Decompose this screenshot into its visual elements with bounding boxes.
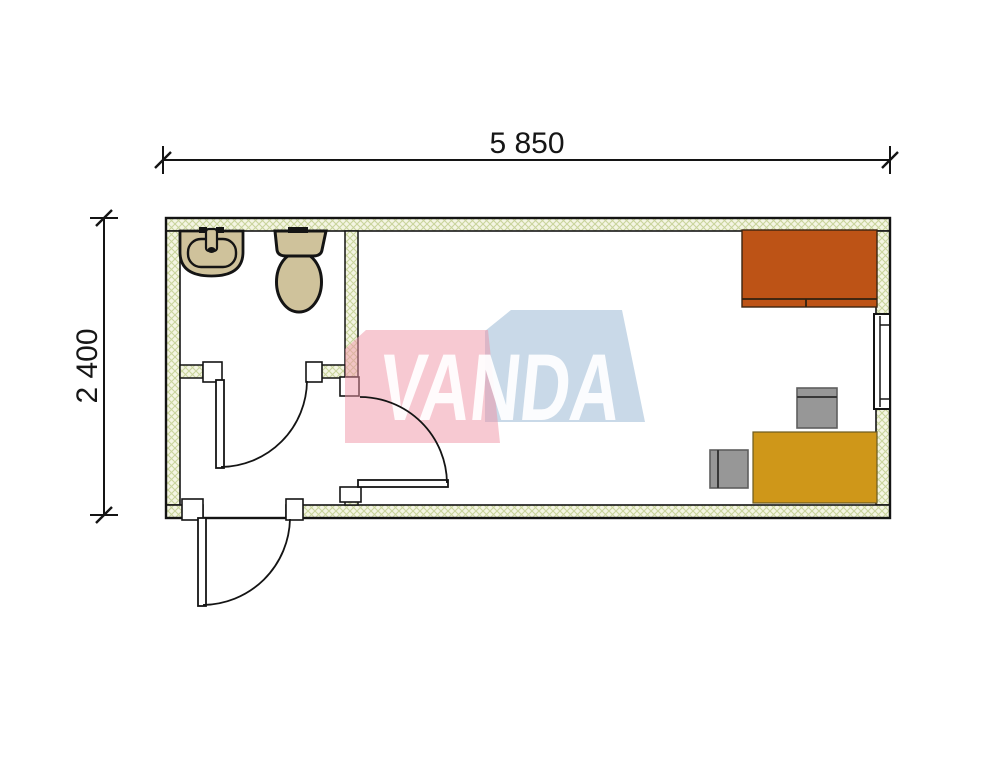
dimension-height-label: 2 400 [71,328,104,403]
desk [753,432,877,503]
cabinet-body [742,230,877,307]
interior-door-leaf [358,480,448,487]
wall-partition-horizontal-left [180,365,203,378]
cabinet [742,230,877,307]
bathroom-door-leaf [216,380,224,468]
entrance-door-swing-arc [203,519,290,605]
entrance-door-leaf [198,518,206,606]
office-chair-left-seat [710,450,748,488]
watermark-text: VANDA [375,335,626,441]
toilet-bowl [277,252,322,312]
toilet-tank [275,231,326,256]
interior-door-jamb-bottom [340,487,361,502]
watermark: VANDA [345,310,645,443]
office-chair-top-seat [797,388,837,428]
entrance-door-jamb-left [182,499,203,520]
washbasin [180,229,243,276]
wall-left [166,231,180,505]
washbasin-mount-mark-right [216,227,224,233]
washbasin-faucet-tip [208,247,216,253]
wall-right-upper [876,231,890,314]
washbasin-mount-mark-left [199,227,207,233]
wall-top [166,218,890,231]
dimension-width-label: 5 850 [489,127,564,160]
floor-plan-drawing: VANDA 5 850 2 400 [0,0,1000,757]
office-chair-left [710,450,748,488]
bathroom-door-swing-arc [221,381,307,467]
toilet-mount-mark [288,227,308,233]
entrance-door-jamb-right [286,499,303,520]
door-jambs [182,362,361,520]
doors [198,380,448,606]
bathroom-door-jamb-left [203,362,222,382]
window [874,314,890,409]
wall-bottom-right [286,505,890,518]
wall-right-lower [876,409,890,505]
bathroom-door-jamb-right [306,362,322,382]
wall-partition-horizontal-right [320,365,345,378]
floor-plan-canvas: VANDA 5 850 2 400 [0,0,1000,757]
toilet [275,231,326,312]
office-chair-top [797,388,837,428]
window-frame [874,314,890,409]
